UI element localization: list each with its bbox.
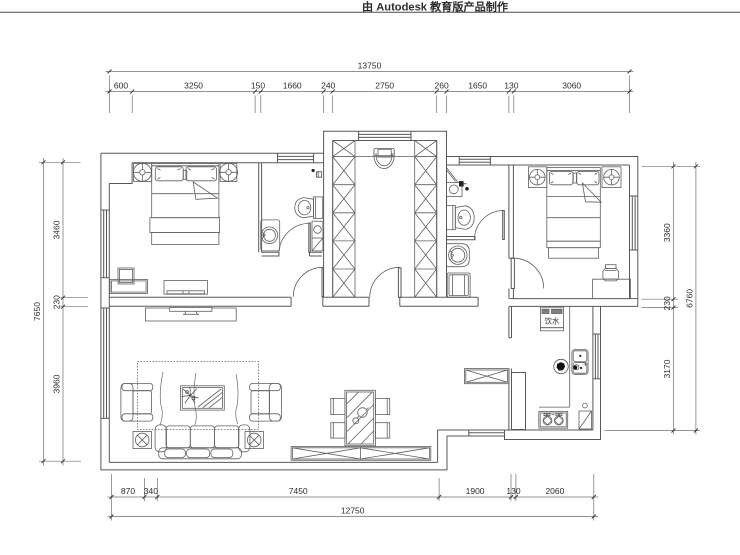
svg-text:600: 600 — [114, 81, 128, 91]
svg-text:870: 870 — [121, 486, 135, 496]
svg-text:260: 260 — [435, 81, 449, 91]
svg-text:饮水: 饮水 — [545, 316, 560, 326]
svg-text:3960: 3960 — [52, 374, 62, 393]
svg-text:3170: 3170 — [662, 359, 672, 378]
svg-text:1900: 1900 — [466, 486, 485, 496]
svg-text:150: 150 — [251, 81, 265, 91]
svg-text:7450: 7450 — [289, 486, 308, 496]
svg-text:6760: 6760 — [684, 289, 694, 308]
svg-text:230: 230 — [662, 296, 672, 310]
svg-text:2750: 2750 — [375, 81, 394, 91]
svg-text:130: 130 — [506, 486, 520, 496]
svg-text:由 Autodesk 教育版产品制作: 由 Autodesk 教育版产品制作 — [362, 0, 508, 14]
svg-text:3360: 3360 — [662, 223, 672, 242]
svg-text:13750: 13750 — [358, 61, 382, 71]
svg-text:240: 240 — [321, 81, 335, 91]
svg-text:2060: 2060 — [545, 486, 564, 496]
svg-text:230: 230 — [52, 295, 62, 309]
svg-text:3460: 3460 — [52, 220, 62, 239]
svg-text:12750: 12750 — [341, 506, 365, 516]
svg-text:1650: 1650 — [468, 81, 487, 91]
svg-text:3250: 3250 — [184, 81, 203, 91]
svg-text:340: 340 — [144, 486, 158, 496]
svg-text:7650: 7650 — [32, 302, 42, 321]
svg-text:3060: 3060 — [562, 81, 581, 91]
svg-text:130: 130 — [504, 81, 518, 91]
svg-text:1660: 1660 — [283, 81, 302, 91]
